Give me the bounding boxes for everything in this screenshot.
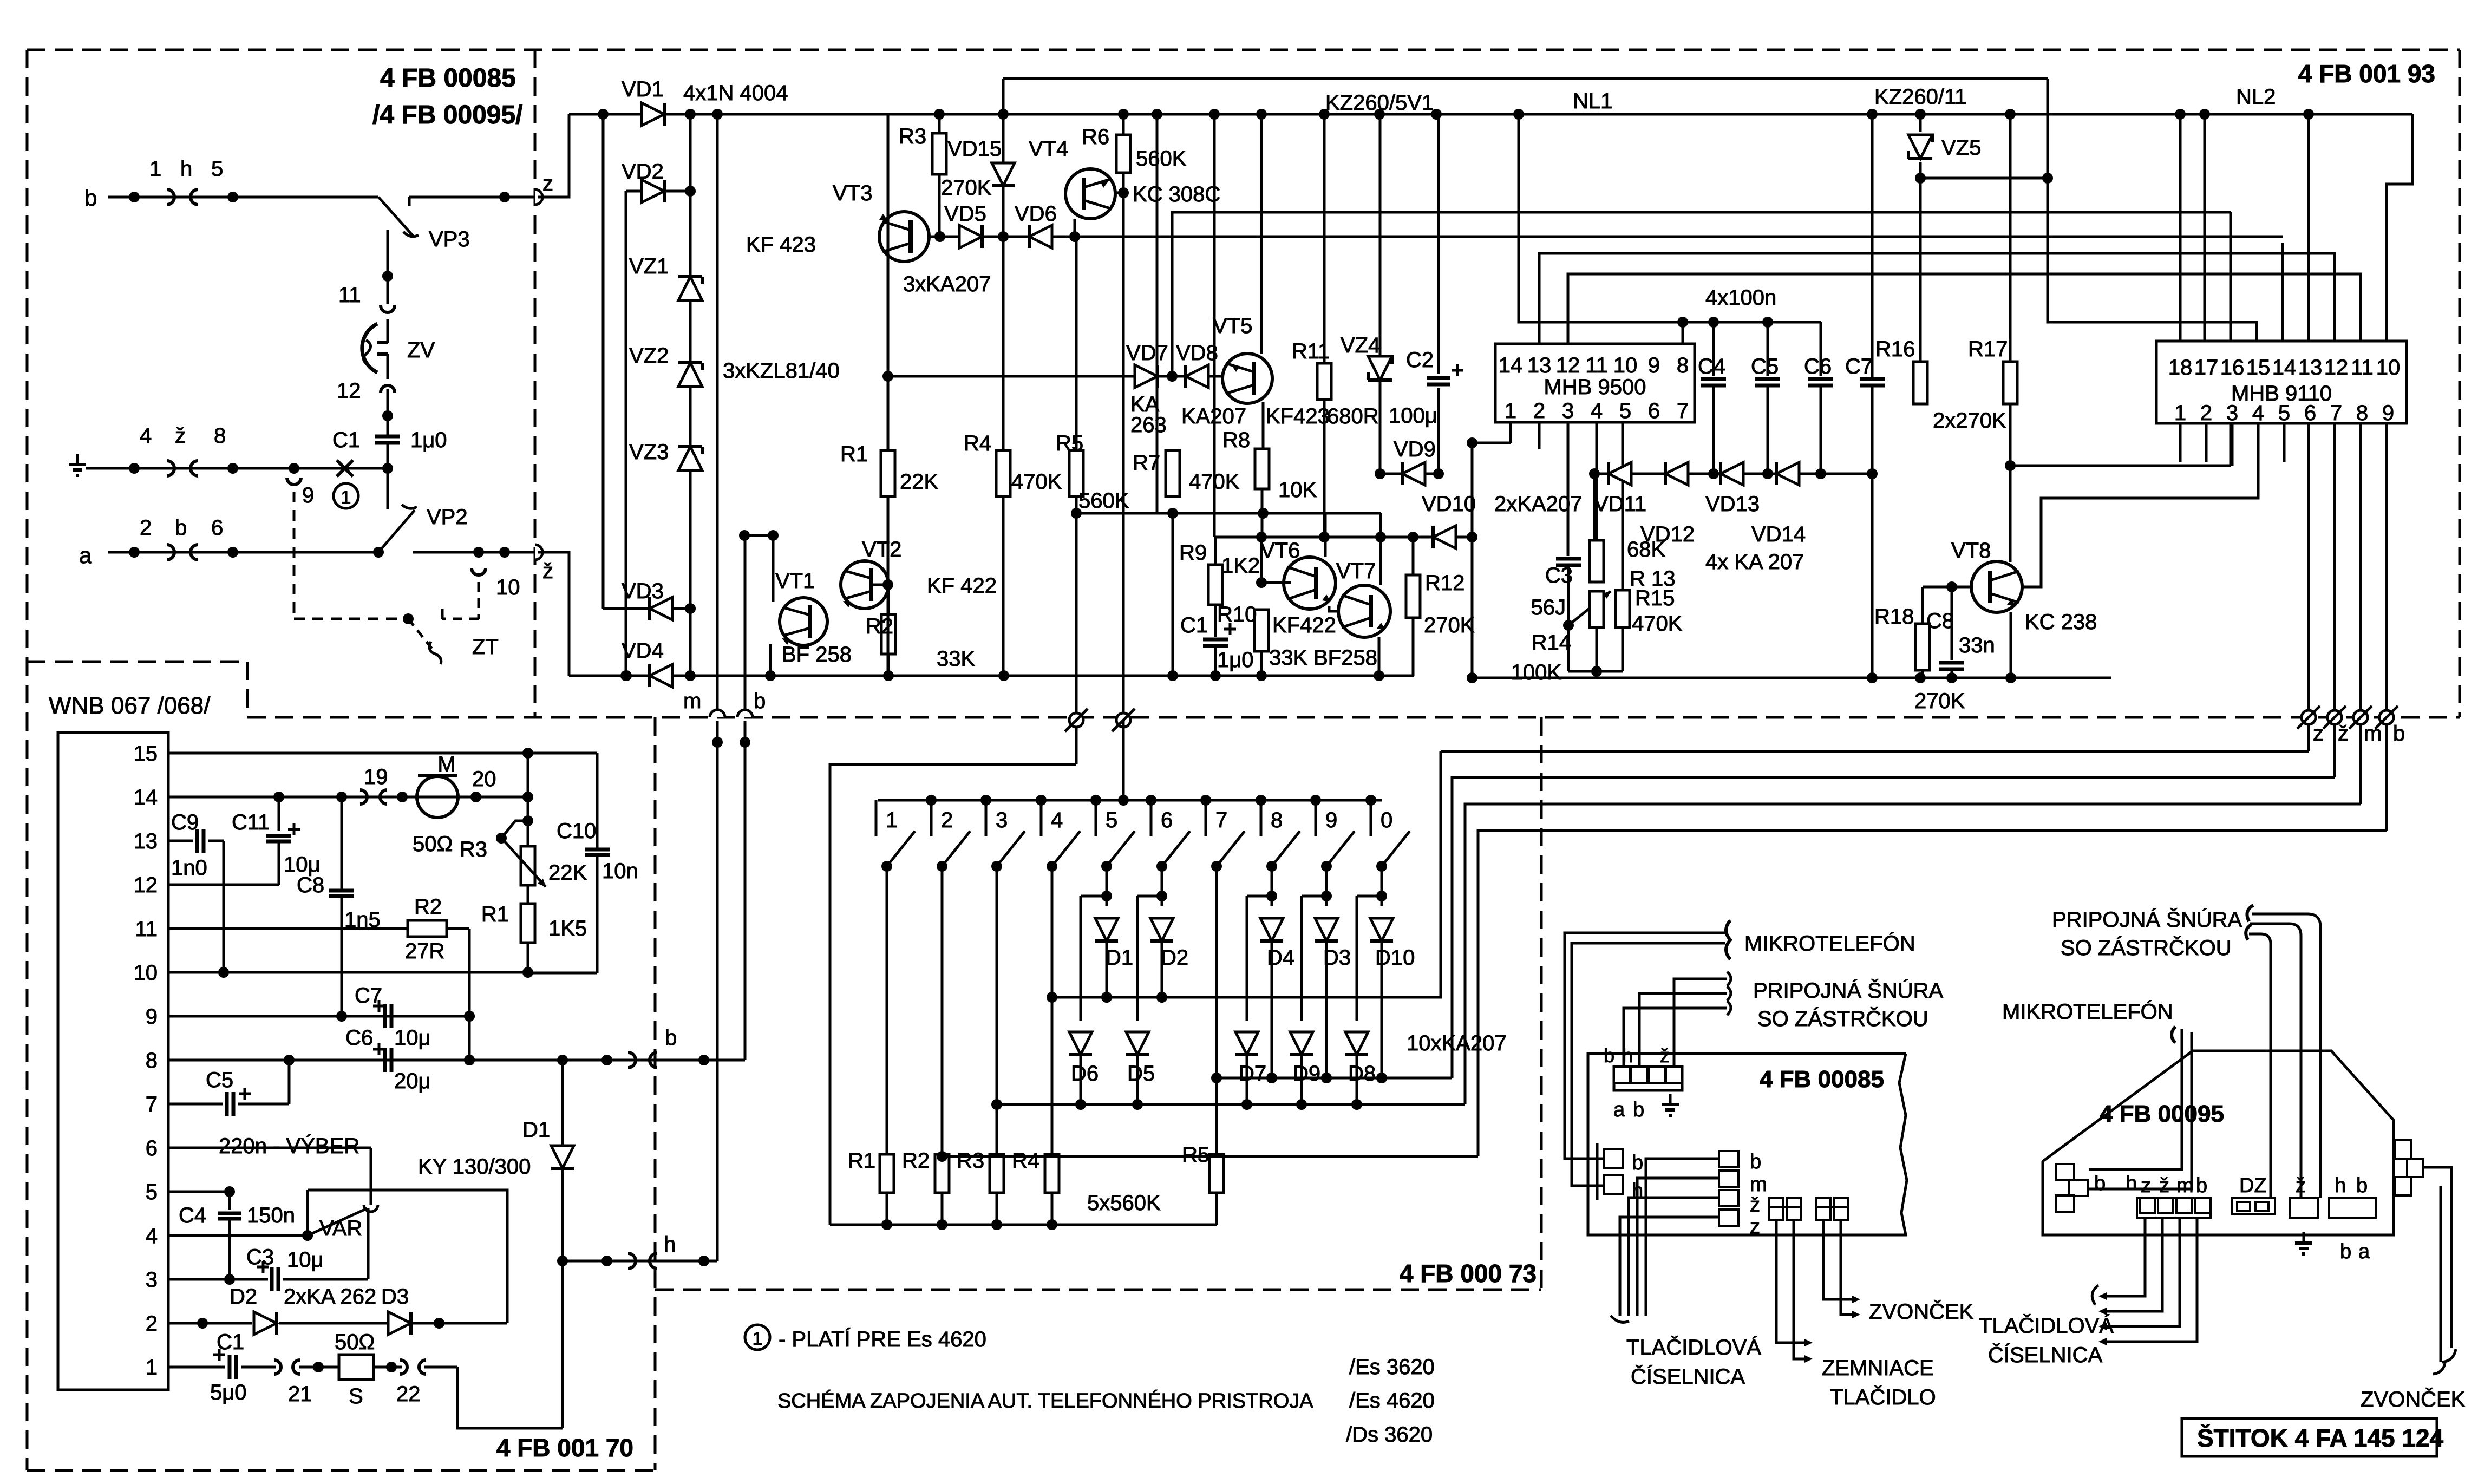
svg-text:6: 6 [1161,808,1173,832]
svg-text:1: 1 [886,808,898,832]
svg-text:VD10: VD10 [1422,492,1476,516]
svg-text:10μ: 10μ [287,1248,324,1272]
svg-text:ž: ž [2159,1174,2169,1197]
svg-text:b: b [665,1026,677,1050]
svg-text:D1: D1 [1106,946,1133,970]
svg-text:VP3: VP3 [429,227,470,251]
svg-text:19: 19 [364,765,388,789]
svg-text:TLAČIDLOVÁ: TLAČIDLOVÁ [1979,1313,2114,1338]
svg-text:BF258: BF258 [1313,646,1377,670]
svg-text:12: 12 [337,379,361,403]
svg-text:270K: 270K [941,176,992,200]
svg-text:ZV: ZV [407,338,435,362]
svg-text:R5: R5 [1182,1143,1209,1167]
svg-text:9: 9 [1325,808,1337,832]
svg-text:270K: 270K [1914,689,1965,713]
svg-text:1K5: 1K5 [548,917,587,940]
svg-text:R17: R17 [1968,337,2008,361]
svg-text:27R: 27R [405,939,444,963]
svg-text:ZVONČEK: ZVONČEK [1869,1299,1974,1324]
svg-text:270K: 270K [1424,613,1475,637]
svg-text:0: 0 [1381,808,1392,832]
svg-text:3xKZL81/40: 3xKZL81/40 [723,359,840,383]
svg-text:2xKA 262: 2xKA 262 [284,1285,376,1309]
svg-text:11: 11 [1585,354,1608,377]
svg-text:VD9: VD9 [1394,437,1436,461]
svg-text:8: 8 [146,1049,158,1073]
svg-text:R16: R16 [1875,337,1915,361]
svg-text:22K: 22K [548,861,587,885]
svg-text:R2: R2 [902,1149,930,1173]
svg-text:VD8: VD8 [1176,341,1218,365]
svg-text:33K: 33K [1269,646,1307,670]
svg-text:VT2: VT2 [862,538,901,561]
svg-text:M: M [437,753,455,776]
svg-text:VD3: VD3 [622,579,664,603]
svg-text:R18: R18 [1874,605,1914,629]
svg-text:14: 14 [134,786,158,809]
svg-text:470K: 470K [1011,470,1062,494]
svg-text:KF 422: KF 422 [927,574,997,598]
svg-text:5: 5 [211,157,223,181]
svg-text:z: z [2141,1174,2151,1197]
svg-text:4 FB 001 93: 4 FB 001 93 [2298,60,2435,88]
svg-text:ZT: ZT [472,635,499,659]
svg-text:R3: R3 [957,1149,984,1173]
svg-text:ž: ž [175,424,186,448]
svg-text:2: 2 [941,808,953,832]
svg-text:10n: 10n [602,859,638,883]
svg-text:C9: C9 [171,810,199,834]
svg-text:150n: 150n [247,1204,295,1227]
svg-text:5: 5 [1619,399,1631,423]
svg-text:C3: C3 [246,1245,274,1269]
svg-text:4 FB 001 70: 4 FB 001 70 [496,1434,633,1462]
svg-text:SO ZÁSTRČKOU: SO ZÁSTRČKOU [1757,1006,1928,1031]
svg-text:17: 17 [2194,356,2219,380]
svg-text:DZ: DZ [2239,1174,2267,1197]
svg-text:ž: ž [542,559,553,583]
svg-text:18: 18 [2168,356,2193,380]
svg-text:ČÍSELNICA: ČÍSELNICA [1988,1343,2102,1367]
svg-text:R10: R10 [1217,603,1257,626]
svg-text:KF423: KF423 [1266,404,1330,428]
svg-text:WNB 067 /068/: WNB 067 /068/ [49,692,211,719]
svg-text:R1: R1 [840,442,868,466]
svg-text:VD13: VD13 [1705,492,1760,516]
svg-text:VD1: VD1 [622,77,664,101]
svg-text:5x560K: 5x560K [1087,1191,1161,1215]
svg-text:2: 2 [2200,401,2212,425]
svg-text:D6: D6 [1071,1062,1099,1086]
svg-text:TLAČIDLOVÁ: TLAČIDLOVÁ [1626,1335,1761,1359]
svg-text:5: 5 [1106,808,1117,832]
svg-text:50Ω: 50Ω [413,832,453,856]
svg-text:h: h [1622,1044,1633,1067]
svg-text:VT3: VT3 [833,181,872,205]
svg-text:VT1: VT1 [775,569,815,593]
svg-text:C4: C4 [179,1204,206,1227]
svg-text:R1: R1 [848,1149,875,1173]
svg-text:ž: ž [2338,722,2349,746]
svg-text:VD7: VD7 [1126,341,1168,365]
svg-text:SO ZÁSTRČKOU: SO ZÁSTRČKOU [2061,936,2232,960]
svg-text:56J: 56J [1531,596,1566,619]
svg-text:R4: R4 [1012,1149,1039,1173]
svg-text:12: 12 [2324,356,2349,380]
svg-text:4 FB 000 73: 4 FB 000 73 [1400,1259,1537,1287]
svg-text:KZ260/5V1: KZ260/5V1 [1325,91,1434,115]
svg-text:D7: D7 [1239,1062,1266,1086]
svg-text:/Es 3620: /Es 3620 [1349,1355,1435,1379]
svg-text:6: 6 [1648,399,1660,423]
svg-text:C11: C11 [232,810,270,834]
svg-text:PRIPOJNÁ ŠNÚRA: PRIPOJNÁ ŠNÚRA [2052,907,2242,932]
svg-text:33K: 33K [937,647,975,671]
svg-text:/4 FB 00095/: /4 FB 00095/ [372,101,523,129]
svg-text:C1: C1 [332,428,360,452]
svg-text:4 FB 00085: 4 FB 00085 [1760,1066,1884,1093]
svg-text:4 FB 00085: 4 FB 00085 [380,64,516,93]
svg-text:VD14: VD14 [1751,522,1806,546]
svg-text:VT8: VT8 [1951,539,1991,563]
svg-text:6: 6 [211,516,223,540]
svg-text:680R: 680R [1327,404,1379,428]
svg-text:VZ5: VZ5 [1941,136,1981,160]
svg-text:MIKROTELEFÓN: MIKROTELEFÓN [2002,999,2173,1024]
svg-text:14: 14 [1499,354,1523,377]
svg-text:b: b [2340,1240,2351,1263]
svg-text:D1: D1 [522,1118,550,1142]
svg-text:z: z [542,172,553,195]
svg-text:3: 3 [1562,399,1574,423]
svg-text:PRIPOJNÁ ŠNÚRA: PRIPOJNÁ ŠNÚRA [1753,978,1943,1003]
svg-text:m: m [2176,1174,2194,1197]
svg-text:VZ2: VZ2 [629,344,669,368]
svg-text:C4: C4 [1698,355,1725,378]
svg-text:S: S [349,1384,363,1408]
svg-text:b: b [2196,1174,2207,1197]
svg-text:3xKA207: 3xKA207 [903,272,991,296]
svg-text:a: a [1613,1099,1625,1121]
svg-text:R2: R2 [414,895,442,919]
svg-text:KY 130/300: KY 130/300 [418,1155,531,1179]
svg-text:C2: C2 [1406,348,1434,372]
svg-text:C6: C6 [1804,355,1832,378]
svg-text:D8: D8 [1348,1062,1376,1086]
svg-text:ŠTITOK 4 FA 145 124: ŠTITOK 4 FA 145 124 [2197,1424,2444,1452]
svg-text:33n: 33n [1959,633,1995,657]
svg-text:h: h [2126,1172,2137,1195]
svg-text:D2: D2 [1161,946,1188,970]
svg-text:VD11: VD11 [1594,492,1646,516]
svg-text:ZEMNIACE: ZEMNIACE [1822,1356,1934,1380]
svg-text:b: b [84,185,97,211]
svg-text:22K: 22K [900,470,938,494]
svg-text:VD5: VD5 [944,202,986,226]
svg-text:R4: R4 [964,432,991,455]
svg-text:9: 9 [2382,401,2394,425]
svg-text:R3: R3 [899,125,926,148]
svg-text:8: 8 [1677,354,1689,377]
svg-text:1μ0: 1μ0 [1217,648,1254,672]
svg-text:R6: R6 [1082,125,1109,149]
svg-text:C10: C10 [557,819,596,843]
svg-text:D4: D4 [1267,946,1294,970]
svg-text:13: 13 [134,829,158,853]
svg-text:C7: C7 [1845,355,1873,378]
svg-text:C7: C7 [355,984,382,1008]
svg-text:15: 15 [134,742,158,766]
svg-text:4: 4 [1051,808,1063,832]
svg-text:D5: D5 [1127,1062,1155,1086]
svg-text:10: 10 [496,576,520,599]
svg-text:VD6: VD6 [1015,202,1057,226]
svg-text:VT7: VT7 [1336,559,1376,583]
svg-text:220n - VÝBER: 220n - VÝBER [219,1134,359,1158]
svg-text:1: 1 [146,1356,158,1380]
svg-text:b: b [1604,1044,1614,1067]
svg-text:VZ1: VZ1 [629,254,669,278]
svg-text:100μ: 100μ [1389,404,1437,428]
svg-text:MHB 9500: MHB 9500 [1544,375,1646,399]
svg-text:13: 13 [1527,354,1552,377]
svg-text:1: 1 [341,487,351,508]
svg-text:2: 2 [146,1312,158,1336]
svg-text:4: 4 [146,1224,158,1248]
svg-text:VT6: VT6 [1260,539,1300,563]
svg-text:KZ260/11: KZ260/11 [1874,85,1967,109]
svg-text:VD4: VD4 [622,639,664,663]
svg-text:3: 3 [2226,401,2238,425]
svg-text:5μ0: 5μ0 [210,1381,247,1404]
svg-text:NL2: NL2 [2236,85,2276,109]
svg-text:21: 21 [288,1382,312,1406]
svg-text:C6: C6 [345,1026,373,1050]
svg-text:3: 3 [996,808,1008,832]
svg-text:2: 2 [140,516,152,540]
svg-text:NL1: NL1 [1573,89,1612,113]
svg-text:10: 10 [2376,356,2401,380]
svg-text:100K: 100K [1511,661,1562,684]
svg-text:4: 4 [2252,401,2264,425]
svg-text:10K: 10K [1278,478,1317,502]
svg-text:10μ: 10μ [394,1026,431,1050]
svg-text:KF422: KF422 [1272,613,1336,637]
svg-text:5: 5 [2278,401,2290,425]
svg-text:h: h [180,157,192,181]
svg-text:6: 6 [2304,401,2316,425]
svg-text:R8: R8 [1222,428,1250,452]
svg-text:TLAČIDLO: TLAČIDLO [1830,1385,1936,1409]
svg-text:b: b [2094,1172,2106,1195]
svg-text:z: z [2313,722,2324,746]
svg-text:VD15: VD15 [947,137,1002,161]
svg-text:10: 10 [134,961,158,985]
svg-text:4x KA 207: 4x KA 207 [1705,550,1804,574]
svg-text:b: b [1750,1150,1761,1173]
svg-text:b: b [1633,1099,1644,1121]
svg-text:ČÍSELNICA: ČÍSELNICA [1631,1364,1745,1389]
svg-text:C1: C1 [1180,613,1208,637]
svg-text:VZ3: VZ3 [629,440,669,464]
svg-text:11: 11 [338,283,361,307]
svg-text:C8: C8 [297,873,324,897]
svg-text:7: 7 [146,1093,158,1116]
svg-text:263: 263 [1130,413,1167,437]
svg-text:7: 7 [1677,399,1689,423]
svg-text:b: b [754,689,766,713]
svg-text:VAR: VAR [319,1217,362,1240]
svg-text:b: b [2356,1174,2368,1197]
svg-text:20: 20 [472,767,496,791]
svg-text:16: 16 [2220,356,2245,380]
svg-text:9: 9 [146,1005,158,1029]
svg-text:m: m [683,689,701,713]
svg-text:11: 11 [2351,356,2374,380]
svg-text:R15: R15 [1635,586,1675,610]
svg-text:1: 1 [753,1329,763,1349]
svg-text:8: 8 [1271,808,1283,832]
svg-text:1n0: 1n0 [171,856,207,880]
svg-text:6: 6 [146,1136,158,1160]
svg-text:4 FB 00095: 4 FB 00095 [2100,1101,2224,1127]
svg-text:ZVONČEK: ZVONČEK [2361,1387,2466,1411]
svg-text:D9: D9 [1293,1062,1320,1086]
svg-text:11: 11 [135,917,158,941]
svg-text:2x270K: 2x270K [1933,409,2006,433]
svg-text:R12: R12 [1425,571,1464,595]
svg-text:4x100n: 4x100n [1705,286,1776,310]
svg-text:8: 8 [214,424,226,448]
svg-text:VD2: VD2 [622,160,664,184]
svg-text:4: 4 [140,424,152,448]
svg-text:- PLATÍ PRE Es 4620: - PLATÍ PRE Es 4620 [779,1327,986,1351]
svg-text:VT4: VT4 [1029,137,1068,161]
svg-text:20μ: 20μ [394,1069,431,1093]
svg-text:MIKROTELEFÓN: MIKROTELEFÓN [1744,931,1915,956]
svg-text:D10: D10 [1375,946,1415,970]
svg-text:D2: D2 [230,1285,257,1309]
svg-text:C1: C1 [217,1330,244,1354]
svg-text:1: 1 [1505,399,1516,423]
svg-text:C5: C5 [206,1068,233,1092]
svg-text:m: m [1750,1173,1767,1196]
svg-text:R3: R3 [460,838,487,861]
svg-text:470K: 470K [1632,612,1683,636]
svg-text:C5: C5 [1751,355,1779,378]
svg-text:VD12: VD12 [1640,522,1695,546]
svg-text:R14: R14 [1532,631,1571,655]
svg-text:a: a [2358,1240,2370,1263]
svg-text:560K: 560K [1078,489,1129,513]
svg-text:KC 238: KC 238 [2025,610,2097,634]
svg-text:z: z [1750,1215,1760,1238]
svg-text:h: h [2335,1174,2346,1197]
svg-text:D3: D3 [381,1285,409,1309]
svg-text:b: b [2393,722,2405,746]
svg-text:VZ4: VZ4 [1341,334,1380,357]
svg-text:BF 258: BF 258 [782,643,852,666]
svg-text:3: 3 [146,1268,158,1292]
svg-text:9: 9 [302,483,314,507]
svg-text:22: 22 [396,1382,421,1406]
svg-text:C8: C8 [1926,609,1954,633]
svg-text:560K: 560K [1136,147,1187,171]
svg-text:ž: ž [1660,1044,1670,1067]
svg-text:/Ds 3620: /Ds 3620 [1346,1423,1433,1447]
svg-text:10xKA207: 10xKA207 [1407,1031,1507,1055]
svg-text:m: m [2364,722,2382,746]
svg-text:R5: R5 [1056,432,1083,455]
svg-text:SCHÉMA ZAPOJENIA AUT. TELEFO: SCHÉMA ZAPOJENIA AUT. TELEFONNÉHO PRISTR… [777,1389,1313,1413]
svg-text:ž: ž [1750,1194,1760,1217]
svg-text:7: 7 [2330,401,2342,425]
svg-text:4x1N 4004: 4x1N 4004 [683,81,788,105]
svg-text:b: b [175,516,187,540]
svg-text:KC 308C: KC 308C [1133,182,1220,206]
svg-text:1μ0: 1μ0 [410,428,447,452]
svg-text:9: 9 [1648,354,1660,377]
svg-text:ž: ž [2296,1174,2306,1197]
svg-text:D3: D3 [1323,946,1351,970]
svg-text:R1: R1 [481,903,509,926]
svg-text:1: 1 [149,157,161,181]
svg-text:VP2: VP2 [427,505,468,529]
svg-text:12: 12 [134,873,158,897]
svg-text:1: 1 [2174,401,2186,425]
svg-text:h: h [664,1233,676,1257]
svg-text:12: 12 [1556,354,1580,377]
svg-text:4: 4 [1591,399,1603,423]
svg-text:50Ω: 50Ω [335,1330,375,1354]
svg-text:b: b [1632,1152,1643,1174]
svg-text:KF 423: KF 423 [746,233,816,257]
svg-text:2: 2 [1533,399,1545,423]
svg-text:14: 14 [2272,356,2297,380]
svg-text:1K2: 1K2 [1221,554,1260,578]
svg-text:5: 5 [146,1180,158,1204]
svg-text:/Es 4620: /Es 4620 [1349,1389,1435,1413]
svg-text:R9: R9 [1179,541,1207,565]
svg-text:10: 10 [1613,354,1638,377]
svg-text:a: a [79,542,92,568]
svg-text:8: 8 [2356,401,2368,425]
svg-text:7: 7 [1215,808,1227,832]
svg-text:13: 13 [2298,356,2323,380]
svg-text:15: 15 [2246,356,2271,380]
svg-text:R11: R11 [1292,339,1330,363]
svg-text:VT5: VT5 [1213,314,1252,338]
